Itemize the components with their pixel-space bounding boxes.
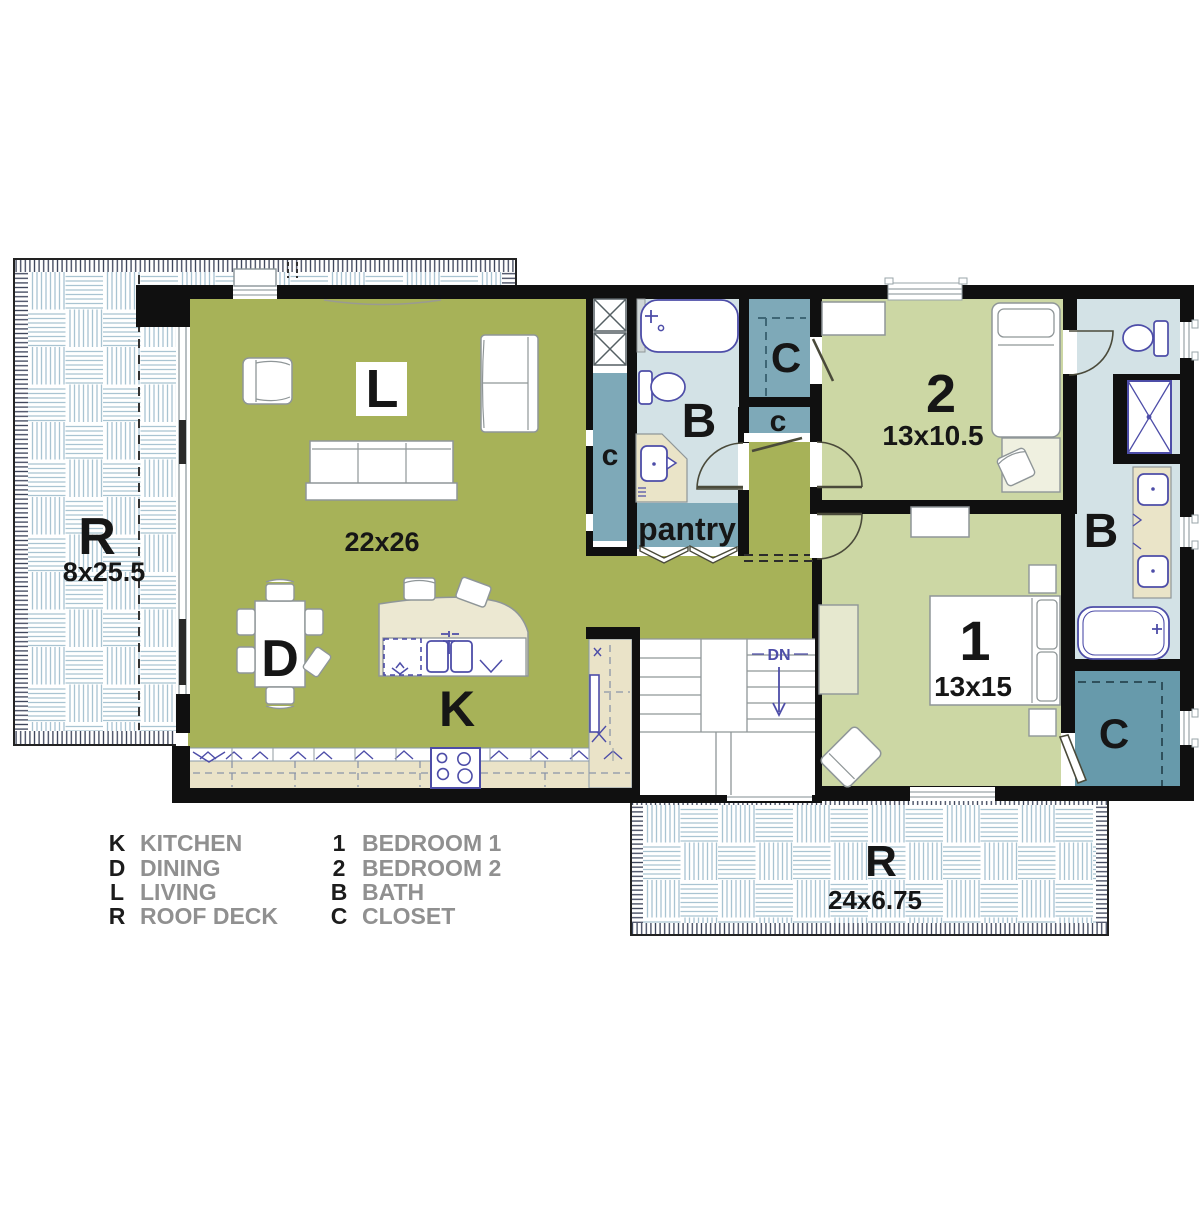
svg-text:C: C <box>1099 710 1129 757</box>
svg-text:BEDROOM 2: BEDROOM 2 <box>362 855 501 881</box>
svg-text:c: c <box>602 439 619 472</box>
svg-text:13x15: 13x15 <box>934 671 1012 702</box>
svg-text:13x10.5: 13x10.5 <box>882 420 983 451</box>
svg-text:DINING: DINING <box>140 855 221 881</box>
svg-text:R: R <box>865 837 897 886</box>
svg-text:c: c <box>770 405 787 438</box>
svg-text:KITCHEN: KITCHEN <box>140 830 242 856</box>
svg-text:2: 2 <box>333 855 346 881</box>
svg-text:BEDROOM 1: BEDROOM 1 <box>362 830 502 856</box>
svg-text:8x25.5: 8x25.5 <box>63 557 146 587</box>
svg-text:pantry: pantry <box>638 511 736 547</box>
svg-text:BATH: BATH <box>362 879 424 905</box>
svg-text:B: B <box>1084 505 1119 558</box>
svg-text:C: C <box>771 334 801 381</box>
svg-text:DN: DN <box>767 647 790 664</box>
svg-text:L: L <box>366 359 399 419</box>
svg-text:1: 1 <box>959 609 990 672</box>
svg-text:R: R <box>109 903 126 929</box>
svg-text:CLOSET: CLOSET <box>362 903 455 929</box>
svg-text:L: L <box>110 879 124 905</box>
svg-text:24x6.75: 24x6.75 <box>828 885 922 915</box>
svg-text:1: 1 <box>333 830 346 856</box>
svg-text:K: K <box>109 830 126 856</box>
svg-text:D: D <box>109 855 126 881</box>
svg-text:C: C <box>331 903 348 929</box>
svg-text:K: K <box>439 681 475 737</box>
svg-text:B: B <box>682 395 717 448</box>
svg-text:22x26: 22x26 <box>344 527 419 557</box>
svg-text:LIVING: LIVING <box>140 879 217 905</box>
svg-text:ROOF DECK: ROOF DECK <box>140 903 278 929</box>
svg-text:B: B <box>331 879 348 905</box>
svg-text:D: D <box>261 630 299 688</box>
svg-text:2: 2 <box>926 364 956 424</box>
